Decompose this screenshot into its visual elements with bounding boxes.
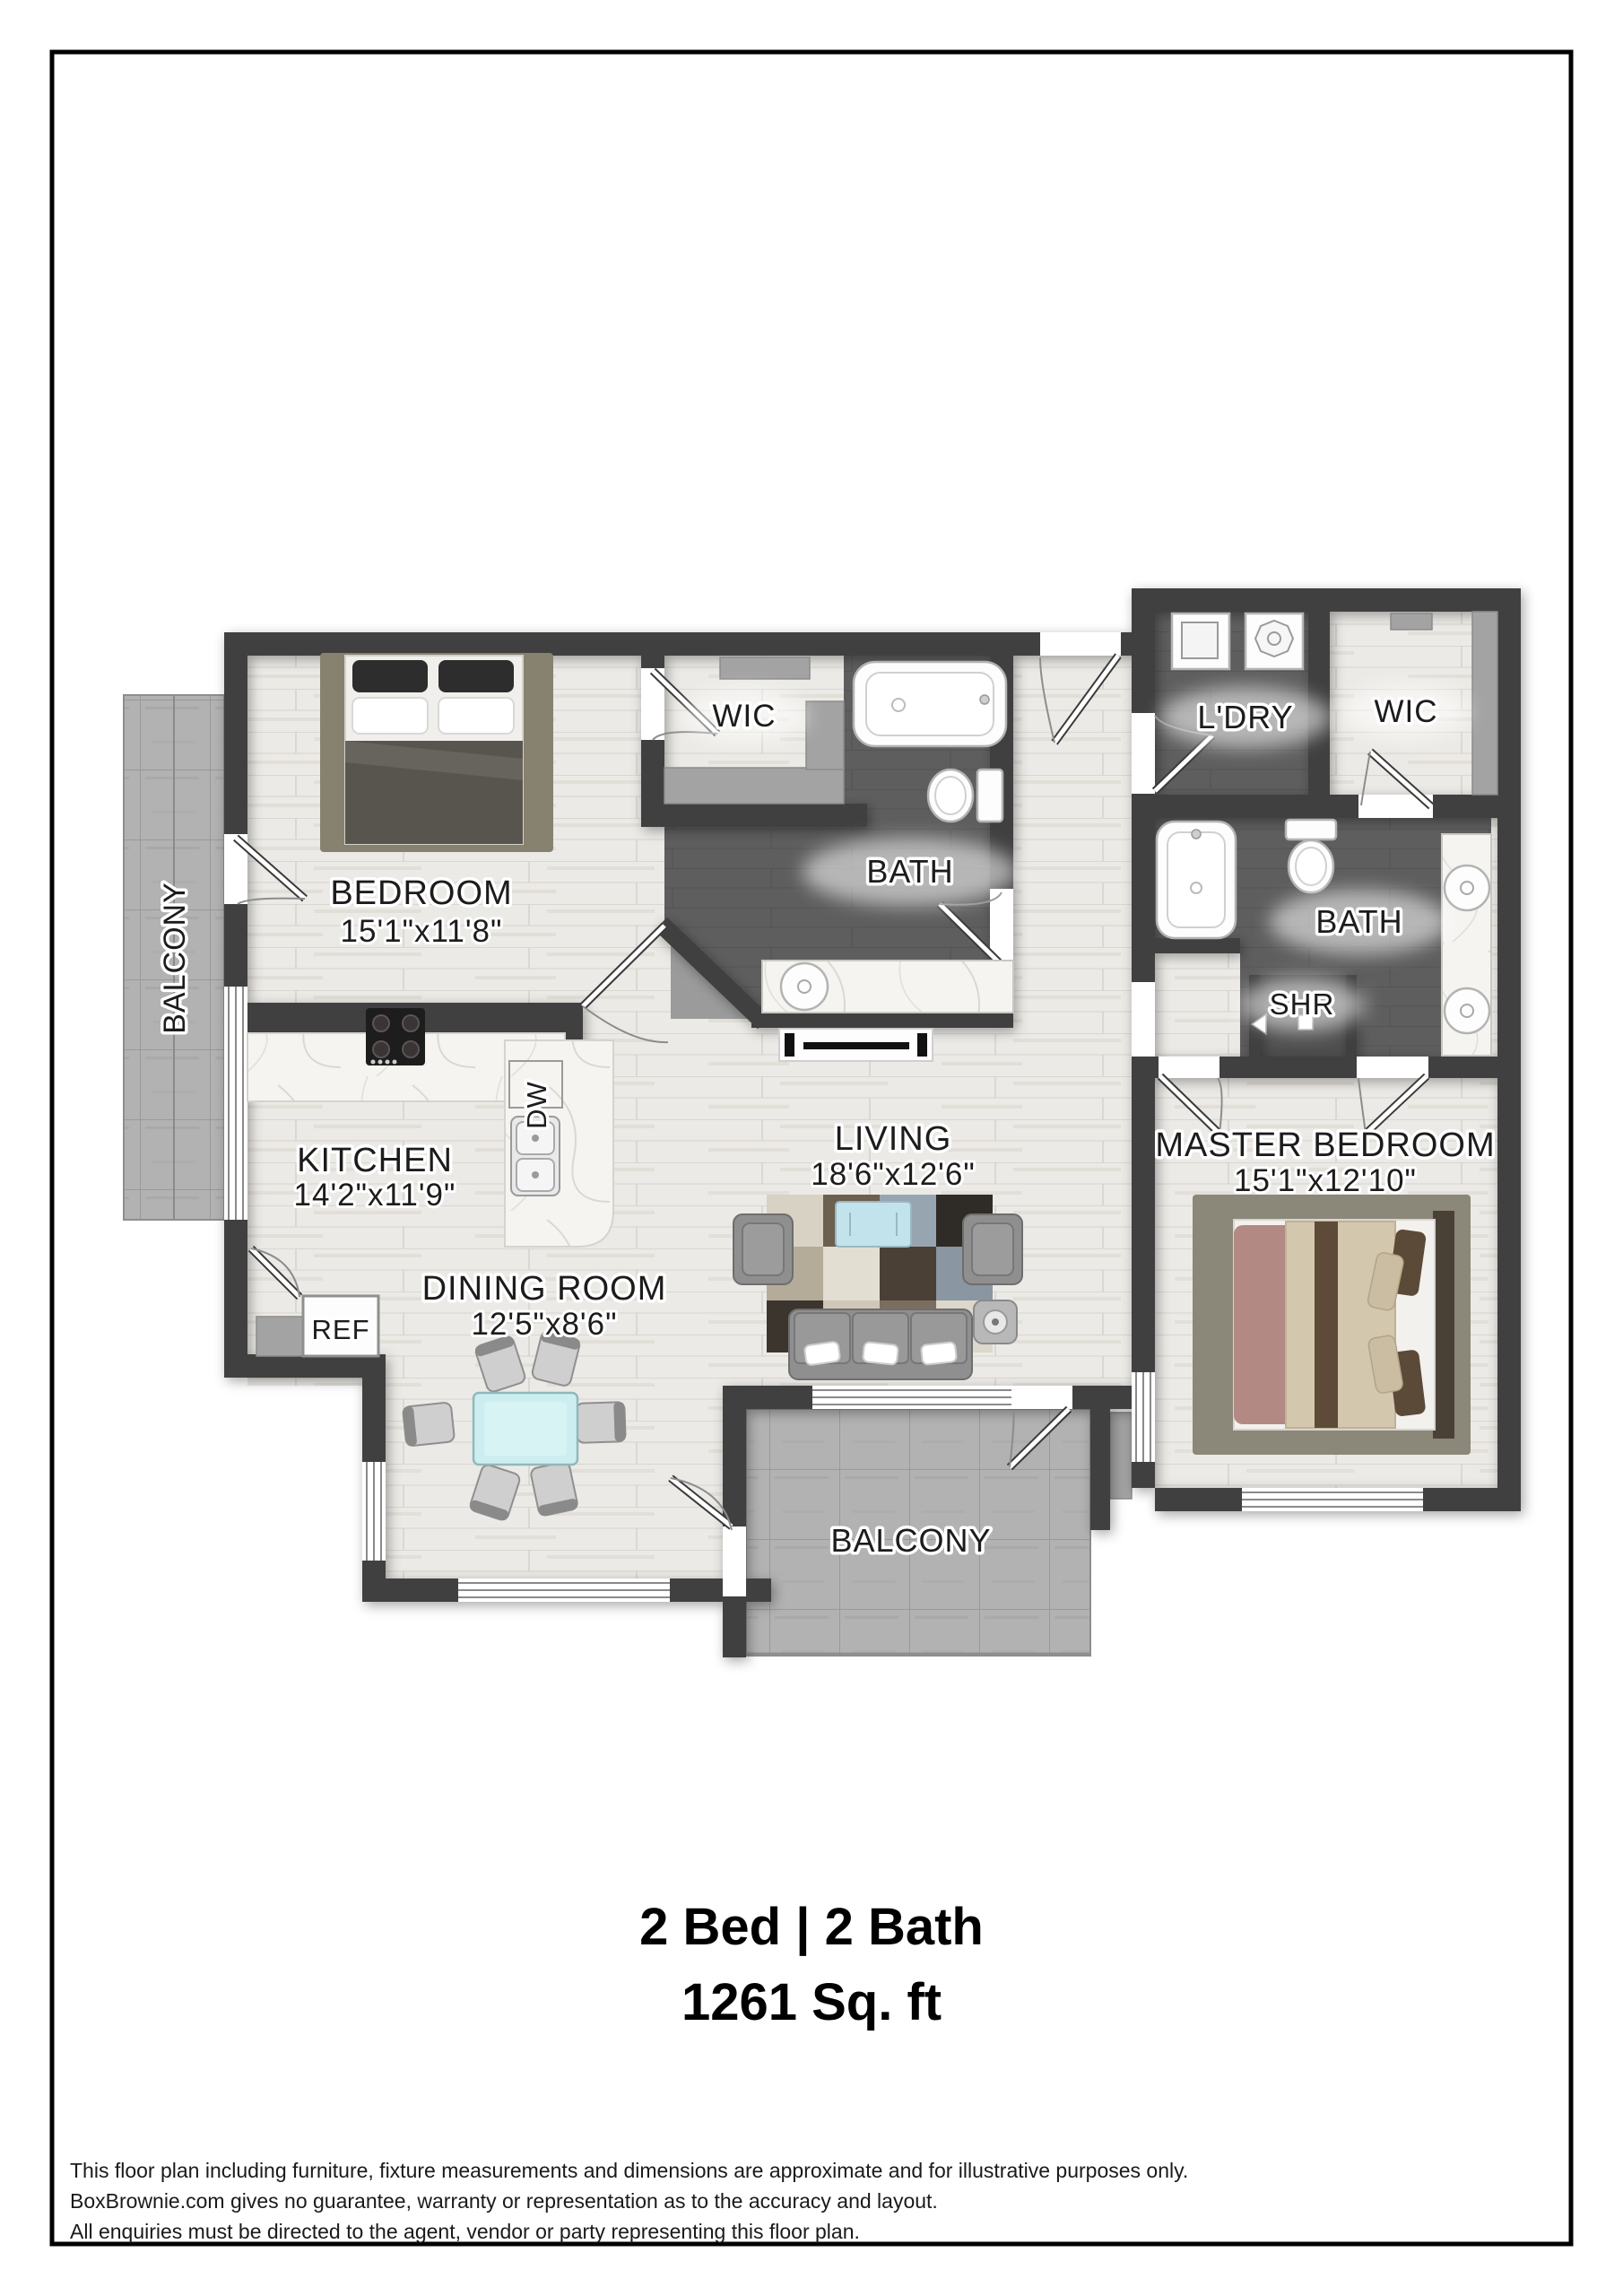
- floor-plan-canvas: BEDROOM 15'1"x11'8" KITCHEN 14'2"x11'9" …: [0, 0, 1623, 2296]
- fridge-label: REF: [312, 1314, 370, 1345]
- disclaimer-line3: All enquiries must be directed to the ag…: [70, 2220, 860, 2243]
- armchair-right: [963, 1214, 1022, 1284]
- bed-bedroom: [320, 653, 553, 852]
- kitchen-island: [505, 1040, 613, 1247]
- balcony-bottom-label: BALCONY: [830, 1522, 991, 1559]
- coffee-table: [836, 1202, 911, 1247]
- washer-icon: [1172, 613, 1229, 669]
- balcony-left-label: BALCONY: [158, 882, 192, 1034]
- disclaimer-line2: BoxBrownie.com gives no guarantee, warra…: [70, 2189, 938, 2213]
- sofa: [789, 1309, 972, 1379]
- bedroom-dims: 15'1"x11'8": [341, 914, 503, 949]
- shower-label: SHR: [1270, 987, 1335, 1021]
- plan-title: 2 Bed | 2 Bath 1261 Sq. ft: [639, 1898, 984, 2031]
- dining-label: DINING ROOM: [422, 1270, 667, 1308]
- kitchen-label: KITCHEN: [297, 1142, 453, 1179]
- wic-main-label: WIC: [712, 699, 776, 734]
- laundry-label: L'DRY: [1197, 699, 1293, 735]
- tv-console-icon: [779, 1029, 933, 1061]
- living-dims: 18'6"x12'6": [811, 1157, 976, 1192]
- bath-master-label: BATH: [1315, 903, 1402, 940]
- bathtub-main-icon: [854, 662, 1006, 746]
- dryer-icon: [1245, 613, 1303, 669]
- bathtub-master-icon: [1157, 822, 1236, 938]
- title-line1: 2 Bed | 2 Bath: [639, 1898, 984, 1956]
- vanity-master-icon: [1442, 834, 1491, 1056]
- vanity-main-icon: [762, 961, 1013, 1013]
- bath-main-label: BATH: [866, 853, 953, 890]
- bed-master: [1193, 1195, 1471, 1455]
- disclaimer-line1: This floor plan including furniture, fix…: [70, 2159, 1188, 2182]
- wic-master-label: WIC: [1374, 694, 1437, 729]
- disclaimer: This floor plan including furniture, fix…: [70, 2159, 1188, 2243]
- toilet-master-icon: [1286, 820, 1336, 892]
- master-dims: 15'1"x12'10": [1234, 1163, 1417, 1198]
- dining-dims: 12'5"x8'6": [471, 1307, 617, 1342]
- toilet-main-icon: [928, 770, 1002, 822]
- armchair-left: [733, 1214, 793, 1284]
- bedroom-label: BEDROOM: [330, 874, 512, 912]
- dishwasher-label: DW: [521, 1081, 552, 1129]
- floor-plan-page: BEDROOM 15'1"x11'8" KITCHEN 14'2"x11'9" …: [0, 0, 1623, 2296]
- side-table: [974, 1300, 1017, 1344]
- title-line2: 1261 Sq. ft: [681, 1973, 942, 2031]
- master-label: MASTER BEDROOM: [1155, 1126, 1495, 1164]
- living-label: LIVING: [835, 1120, 952, 1158]
- kitchen-dims: 14'2"x11'9": [294, 1178, 456, 1213]
- cooktop-icon: [366, 1008, 425, 1065]
